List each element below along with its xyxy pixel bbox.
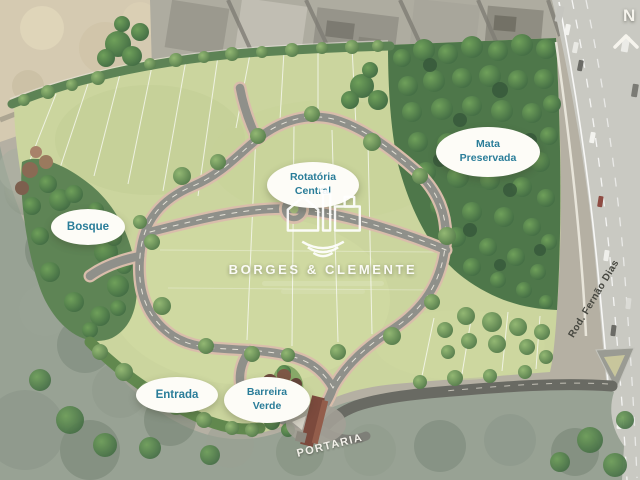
- brand-logo-icon: [283, 184, 363, 261]
- label-entrada: Entrada: [136, 377, 218, 413]
- brand-tagline-faint-2: [281, 289, 365, 294]
- north-arrow-icon: [612, 32, 640, 50]
- label-mata-preservada: Mata Preservada: [436, 127, 540, 177]
- brand-watermark: BORGES & CLEMENTE: [212, 184, 434, 294]
- north-letter: N: [623, 6, 635, 26]
- masterplan-render: Bosque Rotatória Central Mata Preservada…: [0, 0, 640, 480]
- label-bosque: Bosque: [51, 209, 125, 245]
- label-barreira-verde: Barreira Verde: [224, 377, 310, 423]
- brand-tagline-faint: [262, 281, 384, 286]
- brand-name: BORGES & CLEMENTE: [212, 262, 434, 277]
